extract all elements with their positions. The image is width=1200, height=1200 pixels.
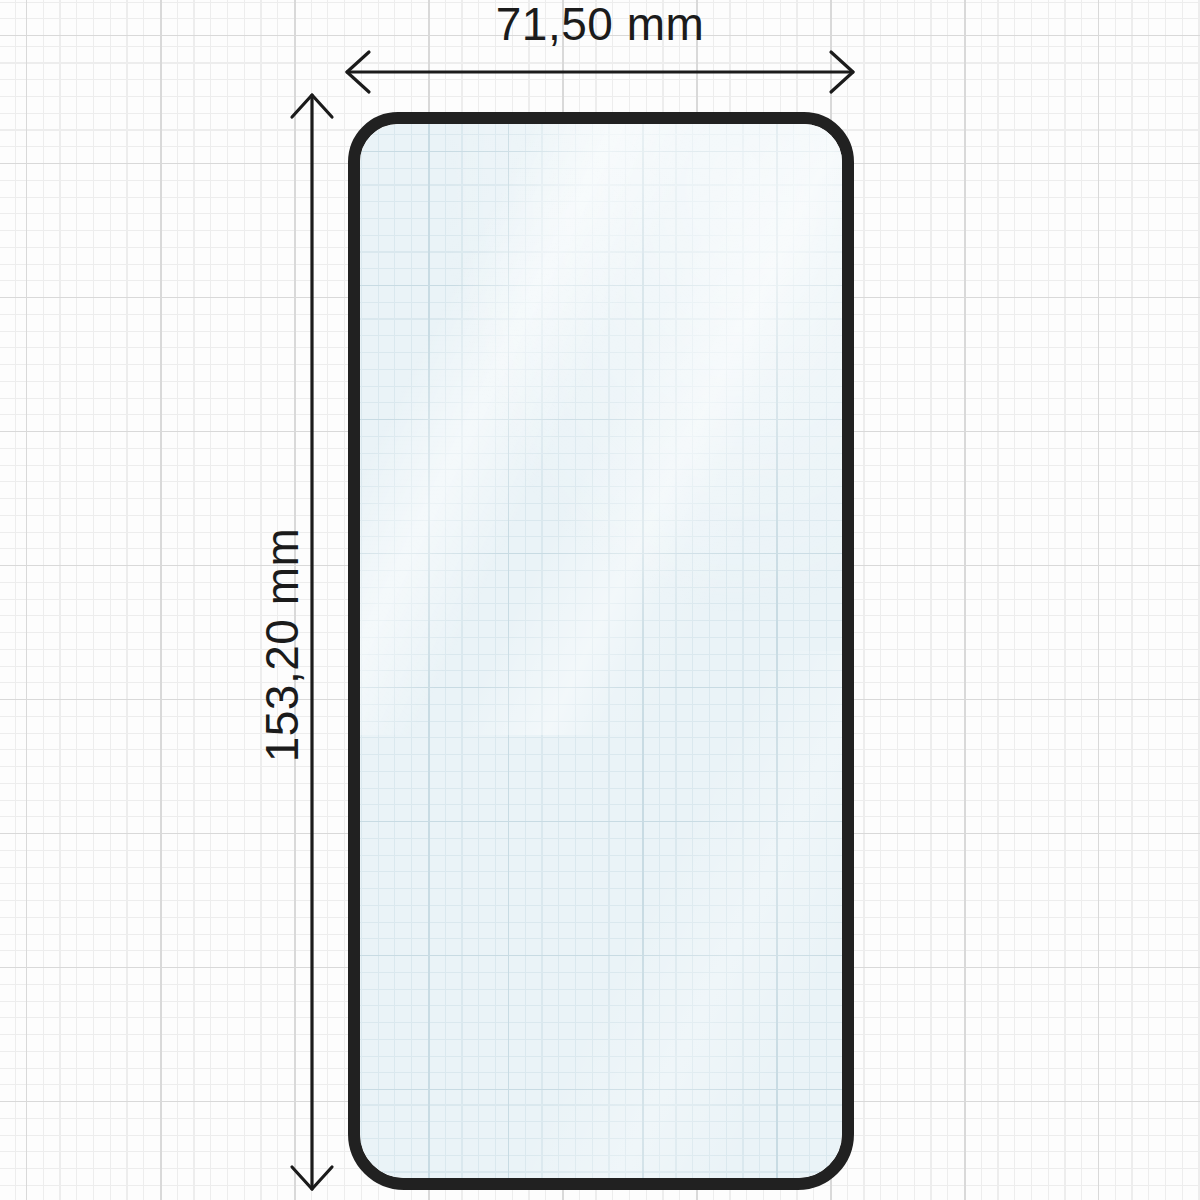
graph-paper-canvas: 71,50 mm 153,20 mm [0, 0, 1200, 1200]
glass-reflection-highlight-lower [360, 651, 842, 1178]
screen-protector-glass-surface [360, 124, 842, 1178]
height-dimension-label: 153,20 mm [256, 385, 308, 905]
width-dimension-label: 71,50 mm [343, 0, 857, 50]
screen-protector-outline [348, 112, 854, 1190]
double-headed-horizontal-arrow-icon [343, 44, 857, 100]
glass-reflection-highlight [360, 124, 842, 735]
